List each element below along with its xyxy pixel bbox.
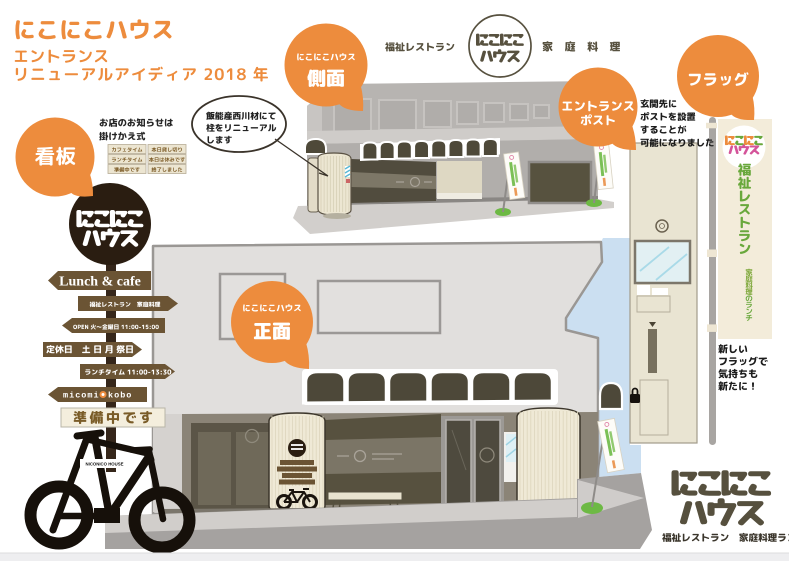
svg-text:Lunch & cafe: Lunch & cafe	[59, 275, 141, 290]
svg-text:NICONICO HOUSE: NICONICO HOUSE	[86, 462, 124, 467]
svg-text:micomi: micomi	[63, 391, 100, 401]
svg-text:kobo: kobo	[108, 391, 132, 401]
